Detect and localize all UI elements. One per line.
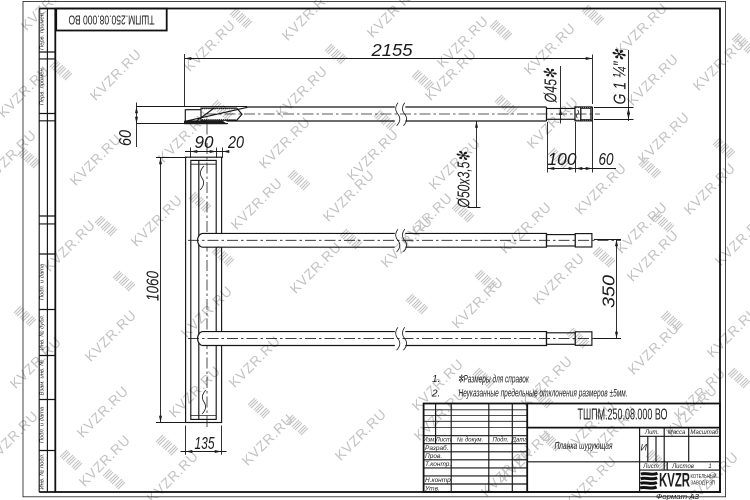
svg-text:90: 90: [195, 132, 214, 152]
svg-text:KVZR: KVZR: [659, 470, 690, 492]
svg-text:Пров.: Пров.: [425, 453, 442, 460]
svg-text:Ø45✻: Ø45✻: [541, 68, 561, 104]
svg-text:Лист: Лист: [642, 464, 658, 470]
svg-text:И: И: [640, 443, 647, 453]
svg-text:Инв. № подл.: Инв. № подл.: [40, 454, 46, 490]
svg-text:1060: 1060: [143, 271, 163, 301]
svg-text:20: 20: [227, 132, 244, 152]
svg-text:Подп.: Подп.: [493, 438, 509, 444]
svg-text:135: 135: [195, 433, 215, 453]
svg-text:№ докум.: № докум.: [457, 437, 483, 444]
svg-text:✻Размеры для справок: ✻Размеры для справок: [458, 374, 529, 386]
svg-text:2155: 2155: [370, 40, 412, 60]
svg-text:Н.контр.: Н.контр.: [425, 477, 453, 484]
svg-text:350: 350: [599, 275, 619, 308]
svg-text:Утв.: Утв.: [424, 485, 440, 492]
svg-text:Дата: Дата: [511, 438, 528, 444]
svg-text:60: 60: [599, 149, 614, 169]
svg-text:Масштаб: Масштаб: [690, 430, 719, 436]
svg-text:Подп. и дата: Подп. и дата: [40, 406, 46, 443]
svg-text:Лист: Лист: [435, 438, 451, 444]
svg-text:ТШПМ.250.08.000 ВО: ТШПМ.250.08.000 ВО: [68, 12, 154, 26]
svg-text:Разраб.: Разраб.: [425, 444, 449, 452]
svg-text:Лит.: Лит.: [644, 430, 659, 436]
svg-text:Т.контр.: Т.контр.: [425, 461, 451, 468]
